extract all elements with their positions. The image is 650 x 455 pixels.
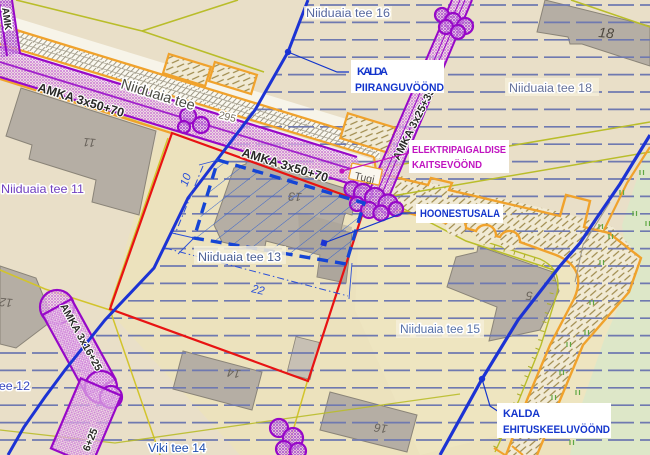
- svg-text:14: 14: [226, 365, 241, 381]
- svg-text:AMK: AMK: [0, 7, 13, 32]
- svg-text:Niiduaia tee 12: Niiduaia tee 12: [0, 379, 30, 393]
- svg-text:Niiduaia tee 15: Niiduaia tee 15: [400, 324, 480, 336]
- svg-text:16: 16: [373, 420, 388, 436]
- svg-text:KALDA: KALDA: [503, 408, 540, 420]
- svg-text:PIIRANGUVÖÖND: PIIRANGUVÖÖND: [355, 81, 444, 94]
- svg-text:HOONESTUSALA: HOONESTUSALA: [420, 208, 500, 220]
- svg-text:KAITSEVÖÖND: KAITSEVÖÖND: [412, 158, 482, 171]
- svg-text:KALDA: KALDA: [357, 66, 388, 78]
- svg-text:EHITUSKEELUVÖÖND: EHITUSKEELUVÖÖND: [503, 423, 610, 436]
- svg-text:Niiduaia tee 16: Niiduaia tee 16: [306, 8, 390, 20]
- svg-text:18: 18: [598, 24, 615, 41]
- svg-text:Viki tee 14: Viki tee 14: [148, 443, 207, 455]
- svg-text:Niiduaia tee 13: Niiduaia tee 13: [198, 252, 281, 264]
- svg-text:ELEKTRIPAIGALDISE: ELEKTRIPAIGALDISE: [412, 145, 506, 156]
- svg-text:Niiduaia tee 11: Niiduaia tee 11: [1, 182, 84, 196]
- svg-text:13: 13: [288, 189, 302, 204]
- svg-text:11: 11: [83, 135, 97, 150]
- svg-text:Niiduaia tee 18: Niiduaia tee 18: [509, 83, 592, 95]
- svg-text:12: 12: [0, 295, 13, 310]
